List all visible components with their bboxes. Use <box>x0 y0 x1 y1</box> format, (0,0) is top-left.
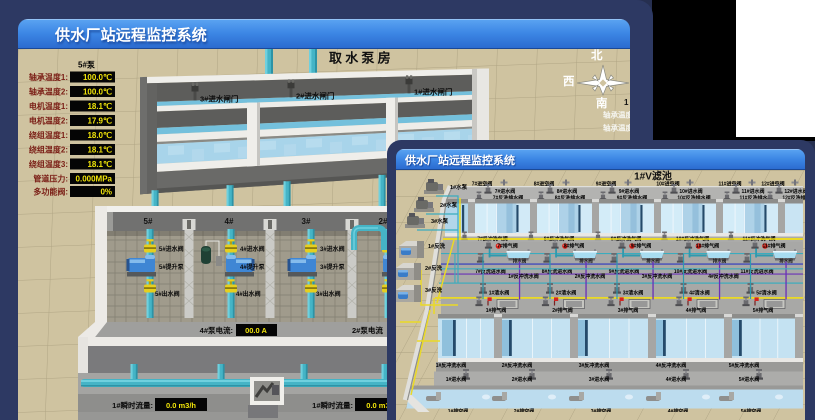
svg-text:1#瞬时流量:: 1#瞬时流量: <box>112 400 153 410</box>
svg-text:3#反冲洗水阀: 3#反冲洗水阀 <box>579 362 610 369</box>
svg-text:3#反冲洗水阀: 3#反冲洗水阀 <box>642 273 673 280</box>
svg-text:1#反冲洗水阀: 1#反冲洗水阀 <box>508 273 539 280</box>
svg-text:3#排气阀: 3#排气阀 <box>618 307 639 314</box>
svg-text:3#进水阀: 3#进水阀 <box>589 376 610 383</box>
svg-text:2#泵电流: 2#泵电流 <box>352 325 383 335</box>
svg-text:10#排气阀: 10#排气阀 <box>696 243 719 250</box>
svg-text:3#进水阀: 3#进水阀 <box>320 245 345 253</box>
svg-text:8#排气阀: 8#排气阀 <box>564 243 585 250</box>
svg-text:5#进水阀: 5#进水阀 <box>739 376 760 383</box>
svg-text:3#进水闸门: 3#进水闸门 <box>200 94 238 104</box>
svg-text:18.1℃: 18.1℃ <box>87 160 112 169</box>
svg-text:轴承温度2:: 轴承温度2: <box>29 87 68 97</box>
svg-text:5#反冲洗水阀: 5#反冲洗水阀 <box>729 362 760 369</box>
svg-text:南: 南 <box>596 96 608 110</box>
svg-text:4#进水阀: 4#进水阀 <box>666 376 687 383</box>
svg-text:多功能阀:: 多功能阀: <box>33 187 68 197</box>
svg-text:4#清水阀: 4#清水阀 <box>689 290 710 297</box>
svg-text:轴承温度1:: 轴承温度1: <box>29 72 68 82</box>
svg-text:18.0℃: 18.0℃ <box>87 131 112 140</box>
svg-text:绕组温度1:: 绕组温度1: <box>29 130 68 140</box>
svg-text:4#排气阀: 4#排气阀 <box>686 307 707 314</box>
svg-text:1#反洗: 1#反洗 <box>428 242 446 250</box>
svg-text:取水泵房: 取水泵房 <box>329 51 394 66</box>
svg-text:100.0℃: 100.0℃ <box>83 73 112 82</box>
svg-text:轴承温度2:: 轴承温度2: <box>603 123 630 133</box>
svg-text:5#出水阀: 5#出水阀 <box>155 290 180 298</box>
svg-text:2#水泵: 2#水泵 <box>440 201 458 209</box>
svg-text:1#瞬时流量:: 1#瞬时流量: <box>312 400 353 410</box>
svg-text:轴承温度1:: 轴承温度1: <box>603 110 630 120</box>
svg-text:17.9℃: 17.9℃ <box>87 117 112 126</box>
svg-text:18.1℃: 18.1℃ <box>87 146 112 155</box>
svg-text:4#: 4# <box>225 217 234 226</box>
svg-text:2#进水闸门: 2#进水闸门 <box>296 90 334 100</box>
svg-text:电机温度1:: 电机温度1: <box>29 101 68 111</box>
svg-text:9#进水阀: 9#进水阀 <box>619 188 640 195</box>
svg-text:12#进水阀: 12#进水阀 <box>784 188 805 195</box>
svg-text:北: 北 <box>591 49 603 62</box>
svg-text:5#泵: 5#泵 <box>78 61 95 70</box>
svg-text:3#反洗: 3#反洗 <box>425 286 443 294</box>
svg-text:1#排气阀: 1#排气阀 <box>486 307 507 314</box>
svg-text:5#排气阀: 5#排气阀 <box>753 307 774 314</box>
svg-text:5#清水阀: 5#清水阀 <box>756 290 777 297</box>
svg-text:3#出水阀: 3#出水阀 <box>316 290 341 298</box>
svg-text:9#排气阀: 9#排气阀 <box>631 243 652 250</box>
svg-text:4#反冲洗水阀: 4#反冲洗水阀 <box>708 273 739 280</box>
svg-text:1#清水阀: 1#清水阀 <box>489 290 510 297</box>
svg-text:3#: 3# <box>302 217 311 226</box>
svg-text:5#进水阀: 5#进水阀 <box>159 245 184 253</box>
svg-text:1#水泵: 1#水泵 <box>450 183 468 191</box>
svg-text:7#进水阀: 7#进水阀 <box>495 188 516 195</box>
svg-text:0.000MPa: 0.000MPa <box>76 175 113 184</box>
svg-text:5#: 5# <box>144 217 153 226</box>
svg-text:4#进水阀: 4#进水阀 <box>240 245 265 253</box>
svg-text:0.0 m3/h: 0.0 m3/h <box>166 401 196 410</box>
svg-text:0%: 0% <box>100 188 112 197</box>
svg-text:1#反冲洗水阀: 1#反冲洗水阀 <box>436 362 467 369</box>
svg-text:5#提升泵: 5#提升泵 <box>159 263 185 271</box>
svg-text:西: 西 <box>563 75 575 88</box>
svg-text:2#排气阀: 2#排气阀 <box>552 307 573 314</box>
svg-text:11#排气阀: 11#排气阀 <box>762 243 785 250</box>
svg-text:2#清水阀: 2#清水阀 <box>556 290 577 297</box>
svg-text:管道压力:: 管道压力: <box>33 174 68 184</box>
svg-text:2#反冲洗水阀: 2#反冲洗水阀 <box>502 362 533 369</box>
svg-text:绕组温度3:: 绕组温度3: <box>29 159 68 169</box>
svg-text:10#进水阀: 10#进水阀 <box>679 188 702 195</box>
svg-text:00.0 A: 00.0 A <box>245 326 267 335</box>
svg-text:2#反冲洗水阀: 2#反冲洗水阀 <box>575 273 606 280</box>
svg-text:电机温度2:: 电机温度2: <box>29 116 68 126</box>
svg-text:4#出水阀: 4#出水阀 <box>236 290 261 298</box>
svg-text:2#进水阀: 2#进水阀 <box>512 376 533 383</box>
svg-text:4#泵电流:: 4#泵电流: <box>200 325 233 335</box>
svg-text:3#清水阀: 3#清水阀 <box>623 290 644 297</box>
svg-text:7#排气阀: 7#排气阀 <box>497 243 518 250</box>
svg-text:4#反冲洗水阀: 4#反冲洗水阀 <box>656 362 687 369</box>
svg-text:3#水泵: 3#水泵 <box>431 217 449 225</box>
svg-text:1: 1 <box>624 98 629 107</box>
svg-text:8#进水阀: 8#进水阀 <box>557 188 578 195</box>
svg-text:100.0℃: 100.0℃ <box>83 88 112 97</box>
svg-text:4#提升泵: 4#提升泵 <box>240 263 266 271</box>
svg-text:绕组温度2:: 绕组温度2: <box>29 145 68 155</box>
svg-text:18.1℃: 18.1℃ <box>87 102 112 111</box>
svg-text:11#进水阀: 11#进水阀 <box>741 188 764 195</box>
svg-text:3#提升泵: 3#提升泵 <box>320 263 346 271</box>
svg-text:1#进水闸门: 1#进水闸门 <box>414 86 452 96</box>
svg-text:1#进水阀: 1#进水阀 <box>446 376 467 383</box>
svg-text:2#反洗: 2#反洗 <box>425 264 443 272</box>
